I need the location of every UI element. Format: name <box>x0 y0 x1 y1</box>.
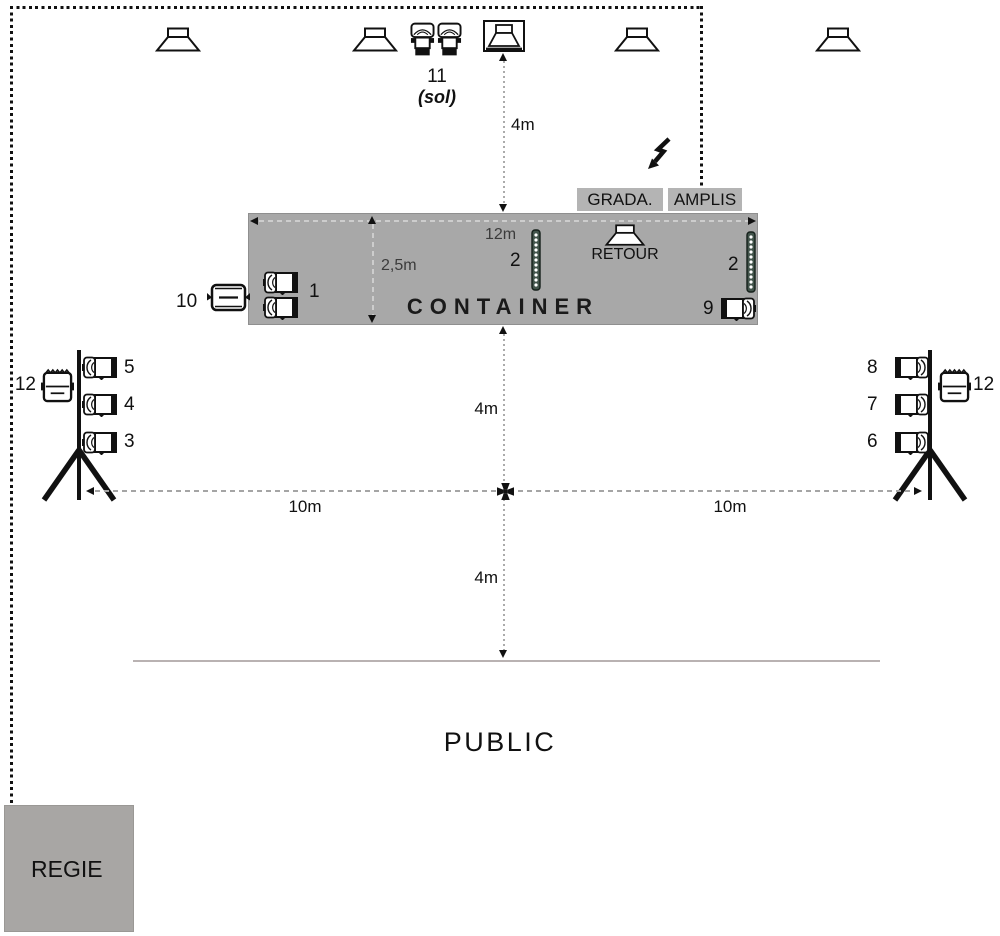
amplis-box: AMPLIS <box>668 188 742 211</box>
speaker-icon <box>612 27 662 53</box>
par-9-label: 9 <box>703 298 714 320</box>
par-front-icon <box>410 22 435 57</box>
par-4-label: 4 <box>124 394 135 416</box>
center-speaker-icon <box>483 20 525 54</box>
speaker-icon <box>153 27 203 53</box>
arrow-down <box>499 650 507 658</box>
arrow-left <box>86 487 94 495</box>
monitor-label: RETOUR <box>583 246 667 264</box>
arrow-up <box>499 326 507 334</box>
par-3-label: 3 <box>124 431 135 453</box>
led-strip-icon <box>746 231 756 293</box>
par-side-icon <box>82 355 119 380</box>
distance-cross-front: 4m <box>468 568 498 588</box>
par-6-label: 6 <box>867 431 878 453</box>
par-5-label: 5 <box>124 357 135 379</box>
cable-border-left <box>10 6 13 805</box>
speaker-icon <box>813 27 863 53</box>
audience-front-line <box>133 660 880 662</box>
distance-speakers-stage: 4m <box>511 115 535 135</box>
par-front-icon <box>437 22 462 57</box>
flood-12-right-label: 12 <box>973 374 994 396</box>
stage-plan: 11 (sol) 4m GRADA. AMPLIS 12m 2,5m 2 RET… <box>0 0 1000 936</box>
arrow-up <box>499 53 507 61</box>
right-span-label: 10m <box>705 497 755 517</box>
par-side-icon <box>893 430 930 455</box>
blinder-icon <box>206 282 251 313</box>
center-cross-icon <box>497 483 514 500</box>
arrow-up <box>368 216 376 224</box>
par-side-icon <box>263 295 300 320</box>
fixture-11-label: 11 <box>407 66 467 88</box>
distance-stage-cross: 4m <box>468 399 498 419</box>
monitor-speaker-icon <box>602 224 648 247</box>
par-8-label: 8 <box>867 357 878 379</box>
flood-12-left-label: 12 <box>8 374 36 396</box>
par-pair-label: 1 <box>309 281 320 303</box>
grada-box: GRADA. <box>577 188 663 211</box>
led-strip-left-label: 2 <box>510 250 521 272</box>
arrow-left <box>250 217 258 225</box>
par-side-icon <box>263 270 300 295</box>
arrow-right <box>914 487 922 495</box>
led-strip-icon <box>531 229 541 291</box>
cable-border-right <box>700 6 703 189</box>
led-strip-right-label: 2 <box>728 254 739 276</box>
flood-icon <box>41 366 74 405</box>
fixture-11-sublabel: (sol) <box>402 87 472 108</box>
stage-title: CONTAINER <box>248 294 758 320</box>
par-side-icon <box>82 392 119 417</box>
audience-label: PUBLIC <box>400 727 600 758</box>
stage-width-line <box>259 220 749 222</box>
arrow-right <box>748 217 756 225</box>
left-span-label: 10m <box>280 497 330 517</box>
stage-width-label: 12m <box>485 226 516 244</box>
speaker-icon <box>350 27 400 53</box>
par-side-icon <box>719 296 756 321</box>
par-side-icon <box>893 355 930 380</box>
control-booth: REGIE <box>4 805 134 932</box>
distance-line-speakers-stage <box>503 61 505 205</box>
cable-border-top <box>10 6 703 9</box>
flood-icon <box>938 366 971 405</box>
par-side-icon <box>893 392 930 417</box>
par-side-icon <box>82 430 119 455</box>
booth-label: REGIE <box>31 856 103 883</box>
arrow-down <box>499 204 507 212</box>
lightning-bolt-icon <box>646 137 672 175</box>
par-7-label: 7 <box>867 394 878 416</box>
stage-depth-label: 2,5m <box>381 257 417 275</box>
blinder-label: 10 <box>176 291 197 313</box>
